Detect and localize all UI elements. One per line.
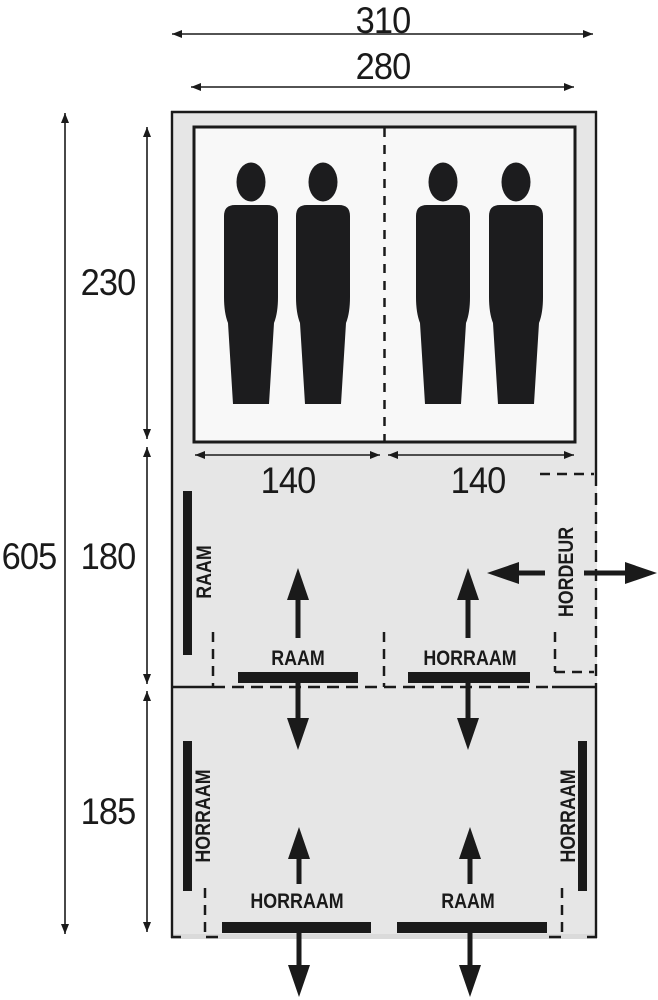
- dim-label-rear-depth: 185: [43, 792, 173, 832]
- arrow-down-icon: [288, 933, 310, 997]
- dim-label-inner-width: 280: [318, 47, 448, 87]
- label-rear-window-right: RAAM: [404, 890, 532, 914]
- label-rear-window-left: HORRAAM: [233, 890, 361, 914]
- dim-label-cabin-depth: 230: [43, 263, 173, 303]
- label-living-window-left: RAAM: [234, 647, 362, 671]
- arrow-down-icon: [459, 933, 481, 997]
- dim-label-living-depth: 180: [43, 537, 173, 577]
- dim-label-outer-width: 310: [318, 1, 448, 41]
- tent-floorplan-diagram: 310 280 605 230 180 185 140 140 RAAM RAA…: [0, 0, 658, 1000]
- label-living-left-wall-window: RAAM: [193, 508, 217, 636]
- living-window-right-bar: [408, 672, 530, 683]
- living-window-left-bar: [238, 672, 358, 683]
- label-rear-left-wall-window: HORRAAM: [192, 752, 216, 880]
- rear-window-right-bar: [397, 922, 547, 933]
- label-living-window-right: HORRAAM: [406, 647, 534, 671]
- tent-bottom-edge: [171, 934, 597, 939]
- rear-left-wall-window-bar: [183, 741, 192, 891]
- rear-window-left-bar: [222, 922, 371, 933]
- dim-label-cabin-left-width: 140: [223, 461, 353, 501]
- living-left-wall-window-bar: [183, 491, 192, 655]
- label-side-door: HORDEUR: [555, 508, 579, 636]
- label-rear-right-wall-window: HORRAAM: [557, 752, 581, 880]
- dim-label-cabin-right-width: 140: [413, 461, 543, 501]
